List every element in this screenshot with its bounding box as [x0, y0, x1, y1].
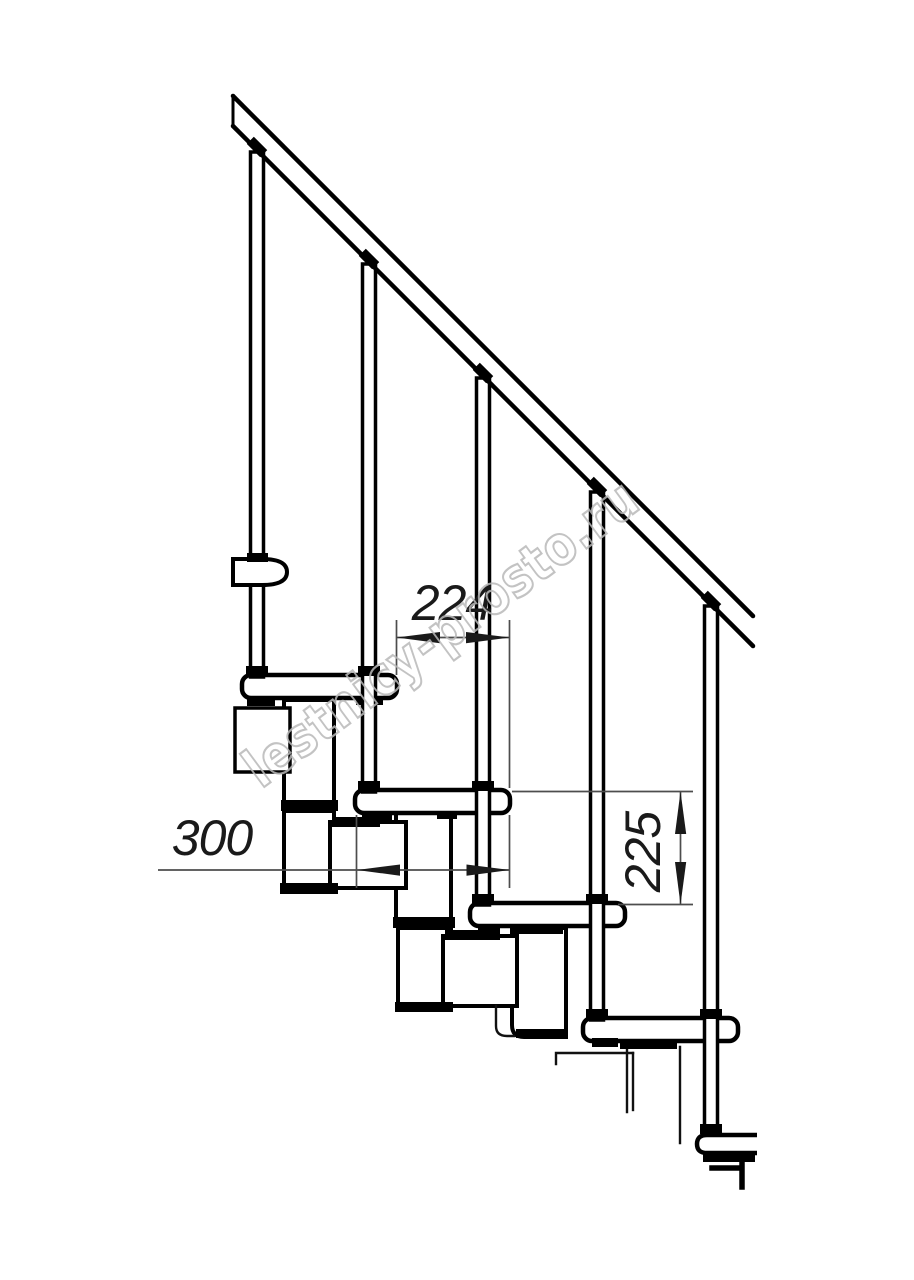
module-box-between-tread-2-3 — [443, 936, 517, 1006]
flange-5 — [395, 1002, 453, 1012]
dim-label-300: 300 — [172, 810, 254, 866]
collar-b1-tread-1 — [246, 666, 268, 676]
module-column-under-tread-3 — [512, 928, 566, 1037]
flange-1 — [281, 800, 338, 811]
staircase-drawing-page: 224 300 225 lestnicy-prosto.ru — [0, 0, 914, 1280]
tread-5-cut — [697, 1135, 757, 1153]
baluster-4 — [591, 492, 604, 1020]
baluster-1 — [251, 152, 264, 677]
collar-b4-tread-4 — [586, 1009, 608, 1019]
foot-tread-1-left — [247, 696, 275, 706]
foot-tread-2-left — [362, 811, 392, 820]
collar-b5-tread-5 — [700, 1124, 722, 1134]
flange-4 — [393, 917, 455, 928]
staircase-technical-drawing: 224 300 225 lestnicy-prosto.ru — [0, 0, 914, 1280]
baluster-5 — [705, 606, 718, 1135]
flange-2 — [280, 883, 338, 894]
foot-tread-4-right — [620, 1040, 677, 1049]
collar-b4-tread-3 — [586, 894, 608, 904]
foot-tread-4-left — [592, 1038, 618, 1047]
collar-bracket-cap — [247, 553, 268, 562]
collar-b5-tread-4 — [700, 1009, 722, 1019]
collar-b2-tread-2 — [358, 781, 380, 791]
collar-b3-tread-3 — [472, 894, 494, 904]
foot-tread-5 — [703, 1151, 755, 1162]
handrail-wall-bracket — [233, 559, 287, 585]
module-column-under-tread-1-lower — [284, 811, 334, 886]
collar-b3-tread-2 — [472, 781, 494, 791]
dim-label-225: 225 — [615, 811, 671, 894]
module-box-between-tread-1-2 — [330, 822, 406, 888]
flange-8 — [516, 1029, 565, 1038]
foot-tread-2-right — [437, 811, 457, 819]
foot-tread-3-left — [478, 924, 500, 933]
